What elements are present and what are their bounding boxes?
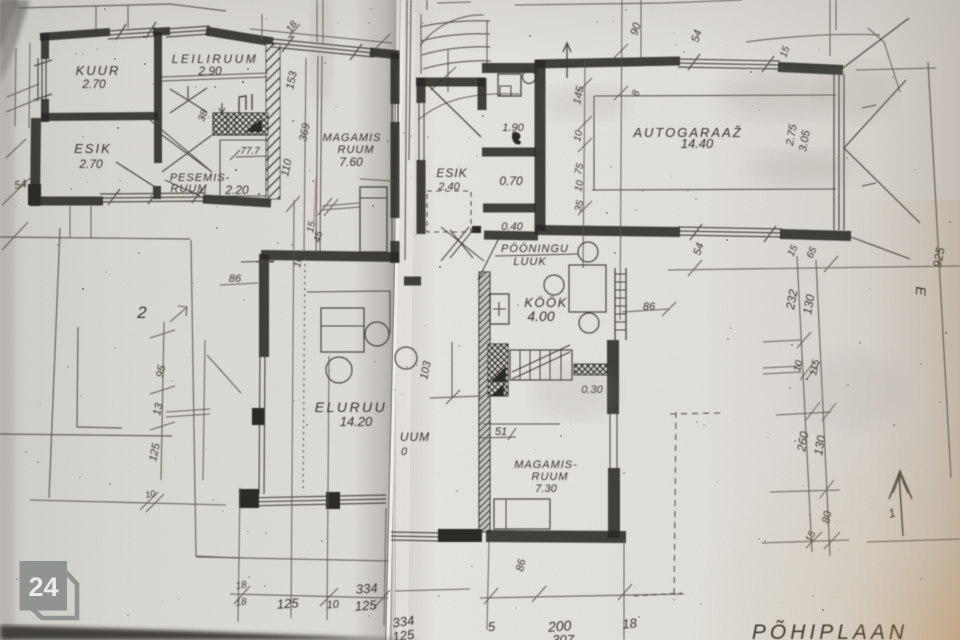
svg-text:24: 24 <box>28 572 58 602</box>
